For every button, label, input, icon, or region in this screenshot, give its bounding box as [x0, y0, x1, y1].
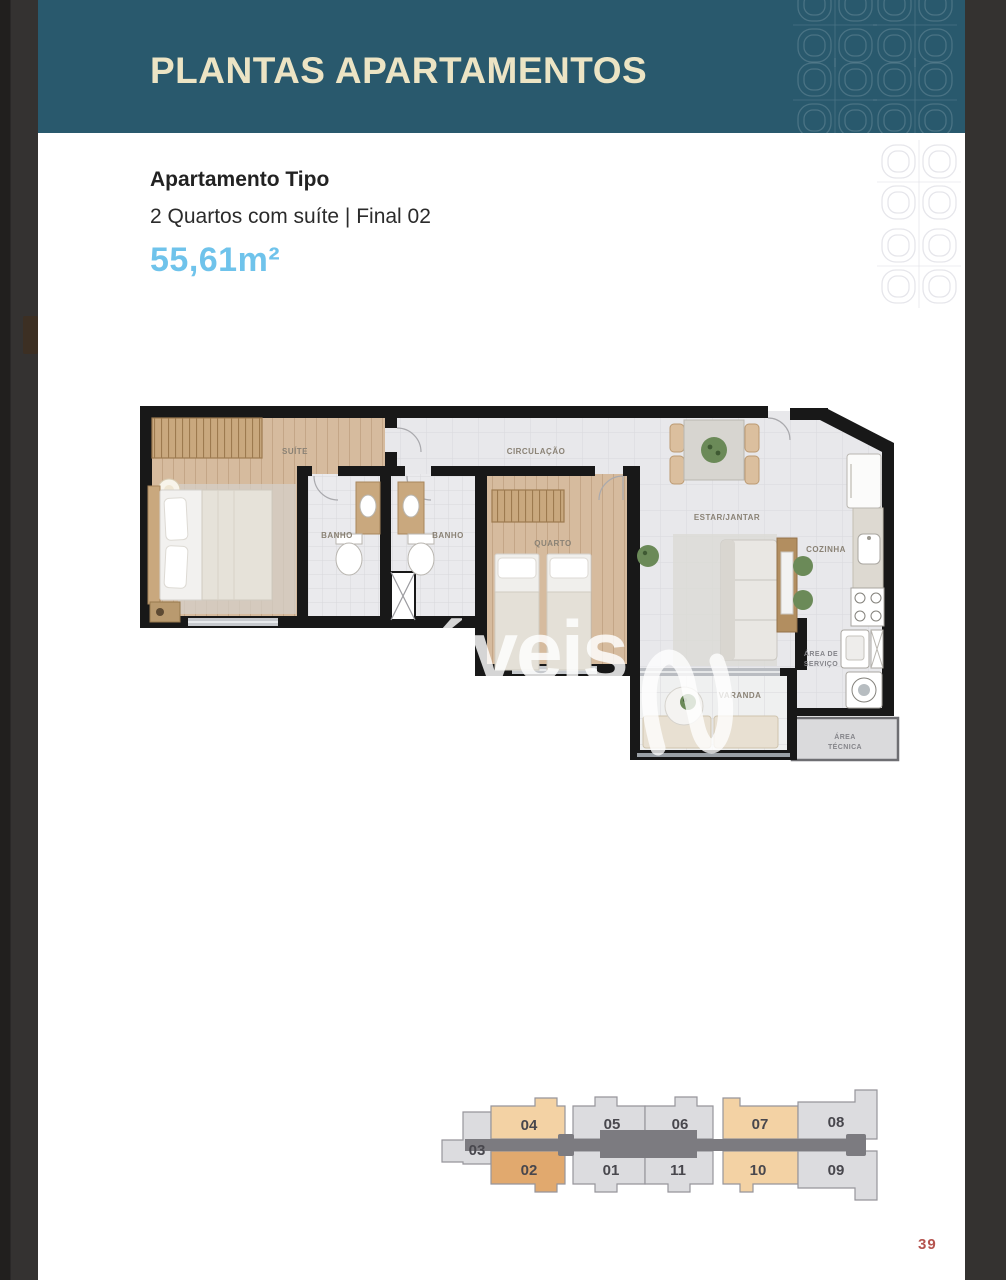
room-label-banho1: BANHO [321, 531, 353, 540]
room-label-quarto: QUARTO [534, 539, 571, 548]
apartment-area: 55,61m² [150, 241, 431, 280]
key-plan-drawing: 03 04 05 06 07 08 02 01 11 10 09 [440, 1082, 880, 1207]
unit-label-04: 04 [521, 1117, 538, 1134]
room-label-suite: SUÍTE [282, 447, 308, 456]
room-label-banho2: BANHO [432, 531, 464, 540]
room-label-area-servico-2: SERVIÇO [804, 661, 838, 668]
room-label-estar-jantar: ESTAR/JANTAR [694, 513, 760, 522]
watermark-text: óveis [422, 604, 627, 698]
apartment-description: 2 Quartos com suíte | Final 02 [150, 205, 431, 229]
key-plan: 03 04 05 06 07 08 02 01 11 10 09 [440, 1082, 880, 1207]
unit-label-03: 03 [469, 1142, 486, 1159]
brochure-page: PLANTAS APARTAMENTOS Apartamento Tipo 2 … [0, 0, 1006, 1280]
flower-pattern-teal [749, 0, 965, 133]
duct-shaft [391, 572, 415, 620]
unit-label-10: 10 [750, 1162, 767, 1179]
page-header-banner: PLANTAS APARTAMENTOS [38, 0, 965, 133]
partial-thumbnail [23, 316, 38, 354]
apartment-type-label: Apartamento Tipo [150, 168, 431, 192]
kitchen-fixtures [847, 454, 884, 626]
unit-label-08: 08 [828, 1114, 845, 1131]
room-label-area-tecnica-1: ÁREA [834, 732, 856, 741]
room-label-area-servico-1: ÁREA DE [804, 649, 838, 658]
page-title: PLANTAS APARTAMENTOS [150, 50, 647, 92]
floor-plan-drawing: SUÍTE CIRCULAÇÃO BANHO BANHO QUARTO ESTA… [140, 406, 905, 766]
page-number: 39 [918, 1236, 937, 1253]
unit-label-02: 02 [521, 1162, 538, 1179]
unit-label-05: 05 [604, 1116, 621, 1133]
unit-label-06: 06 [672, 1116, 689, 1133]
unit-label-07: 07 [752, 1116, 769, 1133]
unit-label-01: 01 [603, 1162, 620, 1179]
viewer-right-strip [965, 0, 1006, 1280]
room-label-area-tecnica-2: TÉCNICA [828, 742, 862, 751]
room-label-circulacao: CIRCULAÇÃO [507, 447, 566, 456]
unit-label-09: 09 [828, 1162, 845, 1179]
unit-label-11: 11 [670, 1162, 686, 1179]
room-label-cozinha: COZINHA [806, 545, 846, 554]
flower-pattern-light [873, 138, 965, 308]
apartment-info: Apartamento Tipo 2 Quartos com suíte | F… [150, 168, 431, 280]
viewer-left-strip [0, 0, 38, 1280]
floor-plan: SUÍTE CIRCULAÇÃO BANHO BANHO QUARTO ESTA… [140, 406, 905, 766]
